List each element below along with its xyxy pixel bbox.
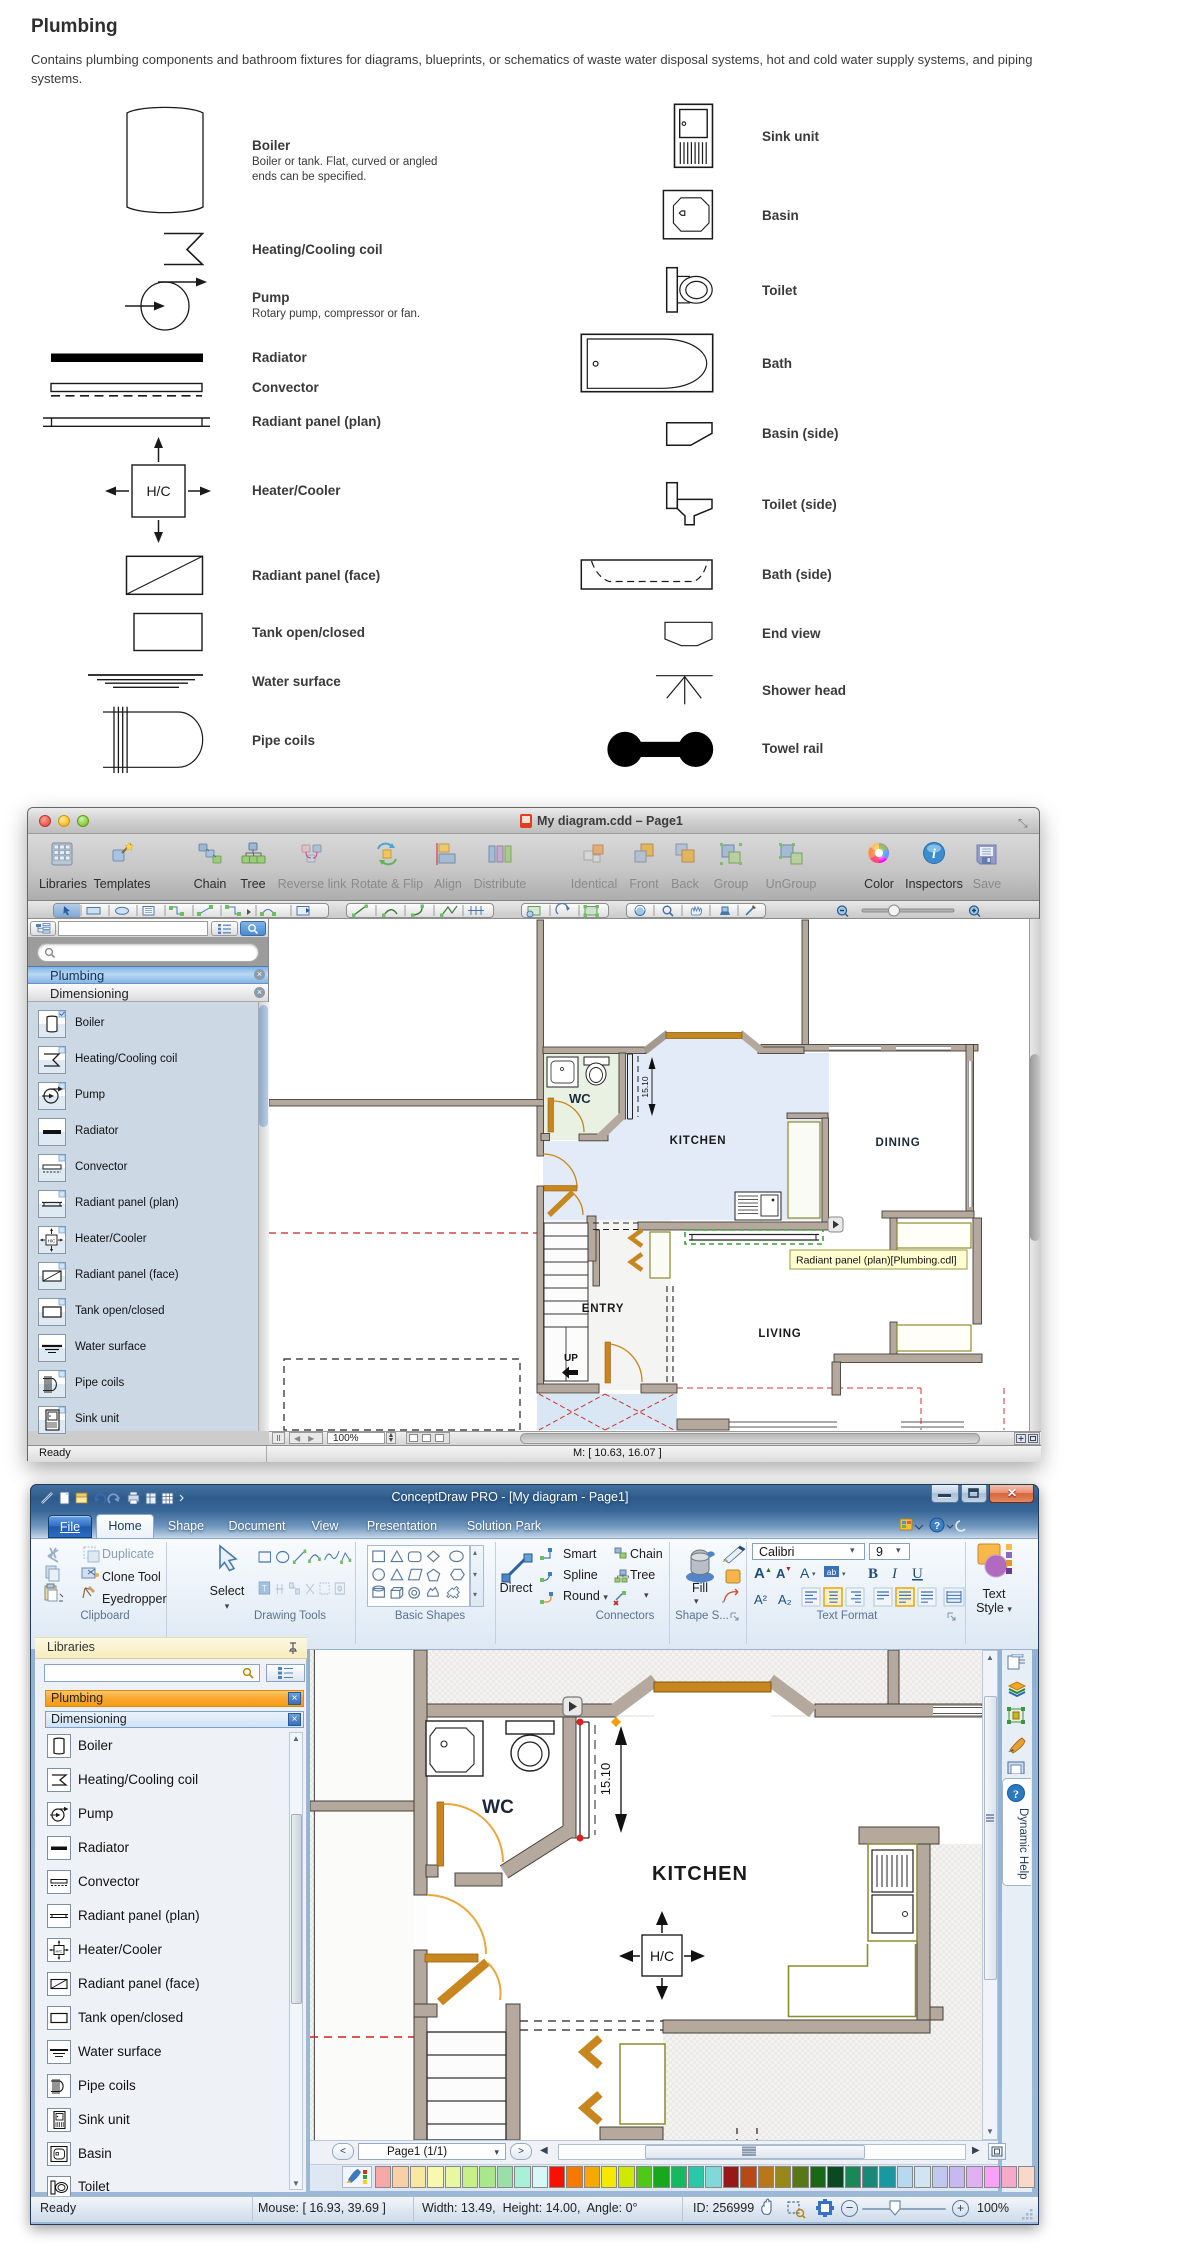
svg-text:U: U — [912, 1566, 923, 1582]
svg-text:15.10: 15.10 — [598, 1763, 613, 1796]
svg-text:DINING: DINING — [875, 1137, 920, 1149]
svg-text:WC: WC — [482, 1797, 514, 1818]
svg-text:ab: ab — [827, 1567, 837, 1577]
svg-text:▲: ▲ — [765, 1567, 772, 1574]
svg-text:H/C: H/C — [56, 1949, 63, 1954]
svg-text:H/C: H/C — [650, 1948, 674, 1964]
svg-text:A: A — [800, 1565, 810, 1581]
svg-text:H/C: H/C — [146, 483, 170, 499]
svg-text:i: i — [932, 847, 936, 862]
svg-text:A²: A² — [754, 1592, 768, 1607]
svg-text:ENTRY: ENTRY — [582, 1303, 625, 1315]
svg-text:WC: WC — [569, 1091, 591, 1106]
svg-text:A₂: A₂ — [778, 1592, 792, 1607]
svg-text:15.10: 15.10 — [640, 1076, 650, 1098]
svg-text:KITCHEN: KITCHEN — [652, 1863, 748, 1885]
svg-text:▾: ▾ — [842, 1571, 846, 1578]
svg-text:A: A — [754, 1565, 765, 1582]
svg-text:?: ? — [1013, 1787, 1019, 1801]
svg-text:Radiant panel (plan)[Plumbing.: Radiant panel (plan)[Plumbing.cdl] — [796, 1255, 957, 1267]
svg-text:B: B — [868, 1566, 878, 1582]
svg-text:LIVING: LIVING — [758, 1328, 801, 1340]
svg-text:▼: ▼ — [785, 1566, 792, 1573]
svg-text:T: T — [262, 1584, 266, 1594]
svg-text:?: ? — [934, 1521, 940, 1532]
svg-text:UP: UP — [564, 1353, 578, 1364]
svg-text:KITCHEN: KITCHEN — [670, 1135, 727, 1147]
svg-text:I: I — [891, 1566, 898, 1582]
svg-text:▾: ▾ — [812, 1571, 816, 1578]
svg-text:H/C: H/C — [48, 1239, 57, 1244]
